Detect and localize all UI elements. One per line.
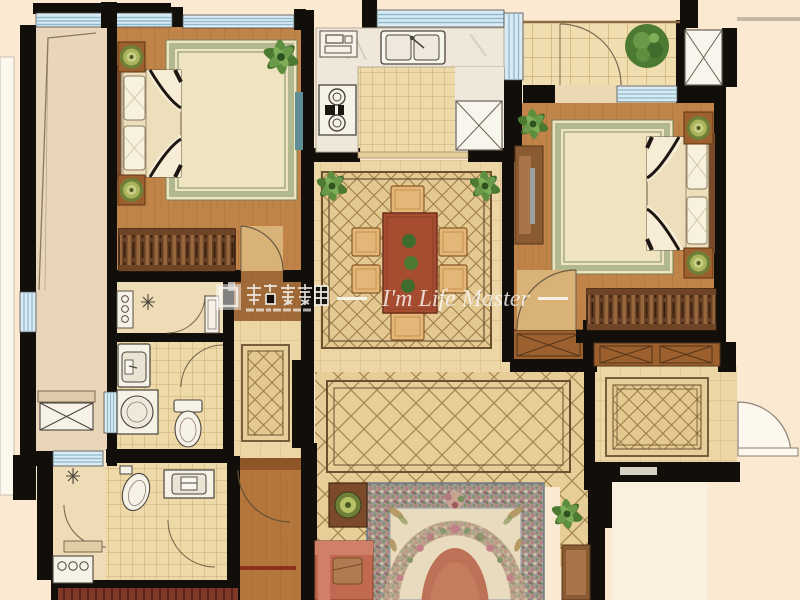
svg-text:I'm Life Master: I'm Life Master <box>381 286 530 312</box>
